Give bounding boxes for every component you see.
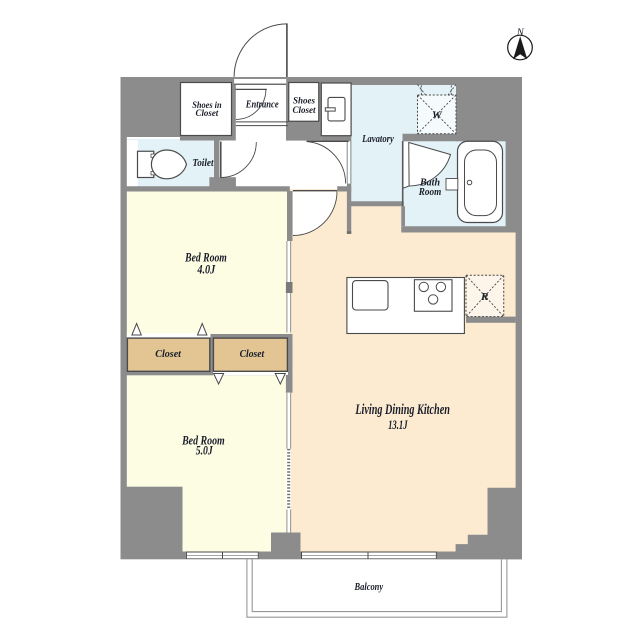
svg-text:Room: Room (418, 186, 441, 197)
svg-text:W: W (432, 109, 443, 121)
svg-text:Entrance: Entrance (245, 99, 279, 111)
svg-text:R: R (480, 291, 488, 303)
svg-text:Closet: Closet (155, 349, 182, 360)
svg-text:Closet: Closet (196, 108, 219, 118)
svg-text:Balcony: Balcony (354, 582, 384, 593)
svg-text:13.1J: 13.1J (388, 418, 408, 432)
svg-text:4.0J: 4.0J (196, 262, 216, 276)
svg-text:Lavatory: Lavatory (361, 134, 395, 145)
svg-text:Toilet: Toilet (192, 158, 213, 169)
svg-text:N: N (516, 28, 525, 39)
svg-text:5.0J: 5.0J (196, 445, 214, 459)
svg-text:Closet: Closet (293, 106, 316, 116)
svg-text:Living Dining Kitchen: Living Dining Kitchen (355, 401, 450, 417)
svg-text:Closet: Closet (240, 349, 266, 360)
